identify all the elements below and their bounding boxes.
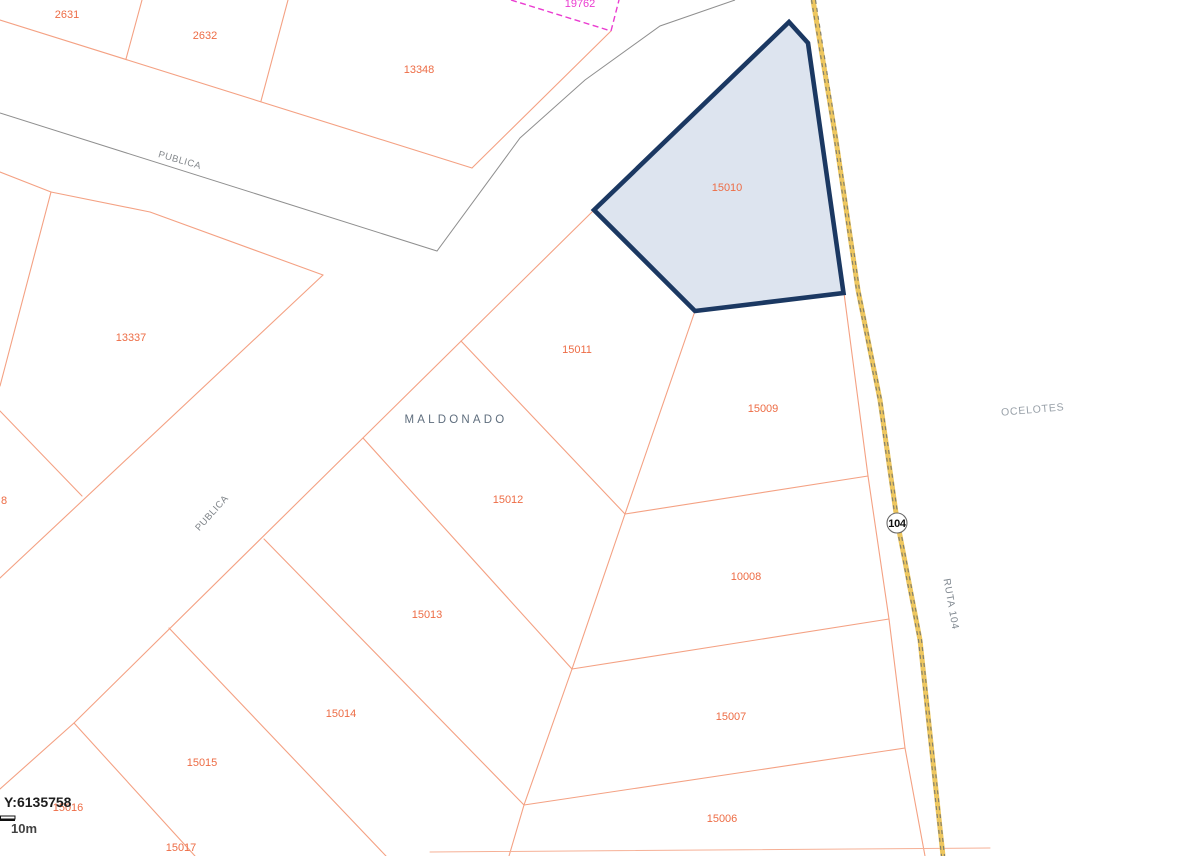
svg-text:10008: 10008: [731, 571, 762, 583]
svg-text:15006: 15006: [707, 813, 738, 825]
svg-text:104: 104: [888, 518, 907, 530]
svg-text:15007: 15007: [716, 711, 747, 723]
svg-text:15010: 15010: [712, 182, 743, 194]
svg-text:2631: 2631: [55, 9, 79, 21]
svg-text:15013: 15013: [412, 609, 443, 621]
svg-text:Y:6135758: Y:6135758: [4, 794, 72, 810]
svg-text:2632: 2632: [193, 30, 217, 42]
svg-text:15014: 15014: [326, 708, 357, 720]
svg-text:10m: 10m: [11, 821, 37, 836]
svg-text:19762: 19762: [565, 0, 596, 10]
svg-text:13348: 13348: [404, 64, 435, 76]
svg-text:MALDONADO: MALDONADO: [405, 414, 508, 426]
svg-text:15017: 15017: [166, 842, 197, 854]
svg-text:15011: 15011: [562, 344, 592, 356]
svg-text:15009: 15009: [748, 403, 779, 415]
svg-text:13337: 13337: [116, 332, 147, 344]
svg-text:8: 8: [1, 495, 7, 507]
svg-text:15015: 15015: [187, 757, 218, 769]
svg-text:15012: 15012: [493, 494, 524, 506]
